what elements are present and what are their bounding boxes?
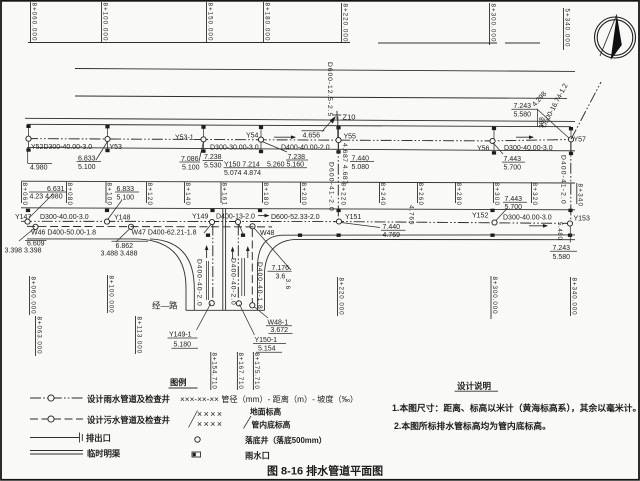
- svg-text:排出口: 排出口: [86, 433, 111, 443]
- svg-text:D300-40.00-3.0: D300-40.00-3.0: [504, 145, 553, 152]
- svg-text:Y57: Y57: [574, 137, 587, 144]
- svg-text:D300-40.00-3.0: D300-40.00-3.0: [40, 214, 89, 221]
- svg-text:5.154: 5.154: [258, 346, 276, 353]
- svg-text:5.580: 5.580: [514, 111, 532, 118]
- svg-text:8+300.000: 8+300.000: [491, 277, 498, 315]
- svg-text:8+060.000: 8+060.000: [29, 277, 36, 315]
- svg-text:8+180.000: 8+180.000: [263, 3, 270, 42]
- svg-text:Y148: Y148: [114, 215, 130, 222]
- svg-text:D400-41-2.0: D400-41-2.0: [560, 155, 567, 205]
- svg-text:1.本图尺寸：距离、标高以米计（黄海标高系），其余以毫米计。: 1.本图尺寸：距离、标高以米计（黄海标高系），其余以毫米计。: [392, 402, 640, 413]
- svg-text:××××: ××××: [197, 409, 224, 419]
- svg-text:8+220.000: 8+220.000: [337, 278, 344, 316]
- svg-text:Y52D300-40.00-3.0: Y52D300-40.00-3.0: [31, 144, 92, 151]
- svg-text:××××: ××××: [197, 419, 224, 429]
- svg-text:3.6: 3.6: [284, 279, 291, 290]
- svg-text:6.862: 6.862: [116, 243, 134, 250]
- svg-text:落底井（落底500mm）: 落底井（落底500mm）: [245, 435, 326, 445]
- svg-text:W47 D400-62.21-1.8: W47 D400-62.21-1.8: [132, 230, 197, 237]
- svg-text:Y152: Y152: [472, 213, 488, 220]
- svg-text:8+300: 8+300: [493, 183, 500, 207]
- svg-text:图 8-16 排水管道平面图: 图 8-16 排水管道平面图: [267, 464, 383, 478]
- svg-text:D400-40-2.0: D400-40-2.0: [196, 259, 203, 307]
- svg-text:4.687 4.687: 4.687 4.687: [341, 143, 348, 184]
- svg-text:5.100: 5.100: [117, 194, 135, 201]
- svg-text:8+113.000: 8+113.000: [135, 317, 142, 355]
- svg-text:8+260: 8+260: [417, 183, 424, 207]
- svg-text:4.656: 4.656: [303, 132, 321, 139]
- svg-text:8+340: 8+340: [576, 184, 583, 208]
- svg-text:5.700: 5.700: [504, 165, 522, 172]
- svg-text:8+100: 8+100: [106, 183, 113, 207]
- svg-text:Z10: Z10: [343, 113, 356, 122]
- svg-text:临时明渠: 临时明渠: [87, 449, 121, 459]
- svg-text:8+080: 8+080: [66, 183, 73, 207]
- svg-text:8+120: 8+120: [146, 183, 153, 207]
- svg-text:8+100.000: 8+100.000: [101, 3, 108, 42]
- svg-text:4.769: 4.769: [383, 232, 401, 239]
- svg-text:Y53: Y53: [110, 144, 123, 151]
- svg-text:2.本图所标排水管标高均为管内底标高。: 2.本图所标排水管标高均为管内底标高。: [394, 420, 551, 431]
- svg-text:Y150-1: Y150-1: [255, 337, 278, 344]
- svg-text:4.23 4.980: 4.23 4.980: [30, 194, 63, 201]
- svg-text:设计说明: 设计说明: [457, 381, 492, 391]
- svg-text:Y149-1: Y149-1: [169, 331, 192, 338]
- svg-text:Y53-1: Y53-1: [175, 135, 194, 142]
- svg-text:8+063.000: 8+063.000: [35, 317, 42, 355]
- svg-text:3.672: 3.672: [271, 327, 289, 334]
- svg-text:W46 D400-50.00-1.8: W46 D400-50.00-1.8: [31, 229, 96, 236]
- svg-text:8+300.000: 8+300.000: [489, 4, 496, 43]
- svg-text:4.769: 4.769: [408, 205, 415, 225]
- svg-text:8+140: 8+140: [184, 183, 191, 207]
- svg-text:D400-40-1.8: D400-40-1.8: [256, 262, 263, 310]
- svg-text:8+200: 8+200: [300, 183, 307, 207]
- svg-text:8+180: 8+180: [262, 183, 269, 207]
- svg-text:8+240: 8+240: [379, 183, 386, 207]
- svg-text:7.243: 7.243: [514, 103, 532, 110]
- svg-text:5.080: 5.080: [352, 164, 370, 171]
- svg-text:雨水口: 雨水口: [245, 451, 270, 461]
- svg-text:8+167.710: 8+167.710: [237, 353, 244, 390]
- svg-text:Y151: Y151: [345, 214, 361, 221]
- svg-text:×××-××-×× 管径（mm）- 距离（m）- 坡度（‰）: ×××-××-×× 管径（mm）- 距离（m）- 坡度（‰）: [180, 394, 358, 404]
- svg-text:Y153: Y153: [574, 216, 590, 223]
- svg-text:W48: W48: [260, 230, 275, 237]
- svg-text:D600-12.5-2.5: D600-12.5-2.5: [326, 62, 333, 117]
- svg-text:8+154.710: 8+154.710: [211, 353, 218, 390]
- svg-text:8+220.000: 8+220.000: [341, 4, 348, 43]
- svg-text:Y56: Y56: [477, 146, 490, 153]
- svg-text:5.480: 5.480: [556, 222, 563, 240]
- svg-text:3.398 3.398: 3.398 3.398: [5, 247, 42, 254]
- svg-text:4.298: 4.298: [531, 91, 548, 109]
- svg-text:5.100: 5.100: [78, 164, 96, 171]
- svg-text:5.700: 5.700: [505, 204, 523, 211]
- svg-text:5.530: 5.530: [204, 162, 222, 169]
- svg-text:8+060: 8+060: [21, 183, 28, 207]
- svg-text:D400-13-2.0: D400-13-2.0: [216, 214, 255, 221]
- svg-text:D400-40-2.0: D400-40-2.0: [230, 258, 237, 306]
- svg-text:D600-52.33-2.0: D600-52.33-2.0: [271, 214, 320, 221]
- svg-text:398: 398: [539, 117, 546, 128]
- svg-text:管内底标高: 管内底标高: [252, 420, 291, 430]
- svg-text:经—路: 经—路: [152, 301, 178, 311]
- svg-text:5.580: 5.580: [553, 254, 571, 261]
- svg-text:5+340.000: 5+340.000: [563, 9, 570, 48]
- svg-text:4.980: 4.980: [30, 165, 48, 172]
- svg-text:8+320: 8+320: [531, 183, 538, 207]
- svg-text:D400-40.00-2.0: D400-40.00-2.0: [281, 145, 330, 152]
- svg-text:8+150.000: 8+150.000: [206, 3, 213, 42]
- svg-text:W48-1: W48-1: [268, 319, 289, 326]
- svg-text:Y149: Y149: [192, 214, 208, 221]
- svg-text:8+220: 8+220: [340, 183, 347, 207]
- svg-text:Y54: Y54: [246, 133, 259, 140]
- svg-text:8+100.000: 8+100.000: [107, 276, 114, 314]
- svg-text:8+340.000: 8+340.000: [570, 278, 577, 316]
- svg-text:8+060.000: 8+060.000: [30, 3, 37, 42]
- svg-text:3.488 3.488: 3.488 3.488: [101, 250, 138, 257]
- svg-text:8+280: 8+280: [455, 183, 462, 207]
- svg-text:图例: 图例: [170, 377, 186, 387]
- svg-text:地面标高: 地面标高: [250, 407, 281, 417]
- svg-text:D600-41-2.0: D600-41-2.0: [328, 162, 335, 212]
- svg-text:5.180: 5.180: [174, 341, 192, 348]
- svg-text:D300-30.00-3.0: D300-30.00-3.0: [210, 145, 259, 152]
- svg-text:设计污水管道及检查井: 设计污水管道及检查井: [87, 415, 170, 425]
- svg-text:Y55: Y55: [344, 134, 357, 141]
- svg-text:D300-40.00-3.0: D300-40.00-3.0: [503, 215, 552, 222]
- svg-text:8+161: 8+161: [221, 183, 228, 207]
- svg-text:8+175.710: 8+175.710: [253, 353, 260, 390]
- svg-text:5.074 4.874: 5.074 4.874: [224, 170, 261, 177]
- svg-text:5.100: 5.100: [182, 164, 200, 171]
- svg-text:设计雨水管道及检查井: 设计雨水管道及检查井: [87, 394, 170, 404]
